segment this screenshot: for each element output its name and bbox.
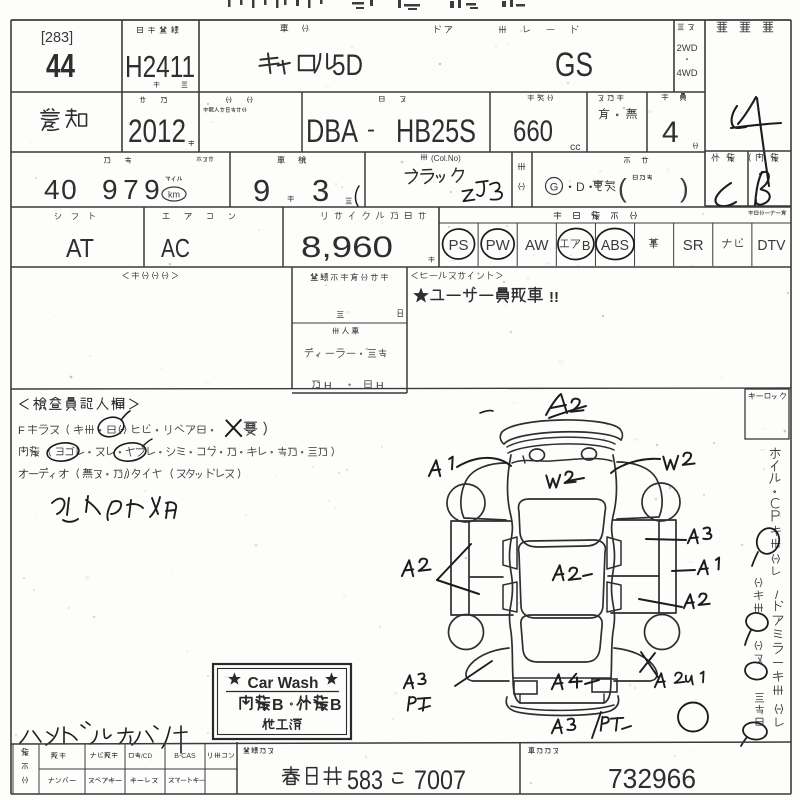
svg-text:H: H <box>376 380 384 392</box>
svg-text:AW: AW <box>525 237 549 254</box>
svg-text:2012: 2012 <box>128 113 186 149</box>
svg-text:-: - <box>367 116 375 143</box>
svg-text:PS: PS <box>449 237 469 254</box>
svg-text:PW: PW <box>486 237 511 254</box>
svg-text:(: ( <box>618 173 627 203</box>
svg-text:GS: GS <box>555 46 593 84</box>
svg-text:HB25S: HB25S <box>396 113 476 149</box>
svg-text:44: 44 <box>46 47 76 84</box>
svg-text:G: G <box>550 182 559 194</box>
svg-text:B: B <box>272 697 284 714</box>
svg-text:9: 9 <box>253 173 270 208</box>
svg-text:km: km <box>168 190 180 200</box>
svg-text:ABS: ABS <box>601 237 629 254</box>
svg-text:B-CAS: B-CAS <box>174 753 196 760</box>
svg-text:8,960: 8,960 <box>301 231 393 264</box>
svg-text:・: ・ <box>683 55 691 64</box>
svg-text:Car Wash: Car Wash <box>248 675 319 692</box>
svg-text:!!: !! <box>549 289 559 306</box>
svg-text:): ) <box>680 173 689 203</box>
svg-text:DTV: DTV <box>757 237 785 254</box>
svg-text:2WD: 2WD <box>676 43 697 54</box>
svg-text:3: 3 <box>312 173 329 208</box>
svg-text:4: 4 <box>662 116 679 149</box>
svg-text:5D: 5D <box>332 49 363 82</box>
svg-text:732966: 732966 <box>608 763 696 794</box>
svg-text:F: F <box>18 425 25 437</box>
svg-text:DBA: DBA <box>306 113 359 149</box>
svg-text:/CD: /CD <box>141 753 153 760</box>
svg-text:B: B <box>330 697 342 714</box>
svg-text:4WD: 4WD <box>676 68 697 79</box>
svg-text:660: 660 <box>513 115 553 148</box>
svg-text:H: H <box>324 380 332 392</box>
svg-text:40: 40 <box>44 174 78 205</box>
svg-text:B: B <box>582 238 591 253</box>
svg-text:AC: AC <box>161 233 190 263</box>
svg-text:SR: SR <box>683 237 704 254</box>
svg-text:AT: AT <box>66 233 94 263</box>
svg-text:7007: 7007 <box>414 765 466 795</box>
svg-text:583: 583 <box>347 765 383 795</box>
svg-text:(Col.No): (Col.No) <box>431 154 461 163</box>
svg-text:979: 979 <box>102 174 165 205</box>
svg-text:H2411: H2411 <box>125 49 195 84</box>
svg-text:[283]: [283] <box>41 30 73 46</box>
svg-text:・D・: ・D・ <box>564 180 597 194</box>
